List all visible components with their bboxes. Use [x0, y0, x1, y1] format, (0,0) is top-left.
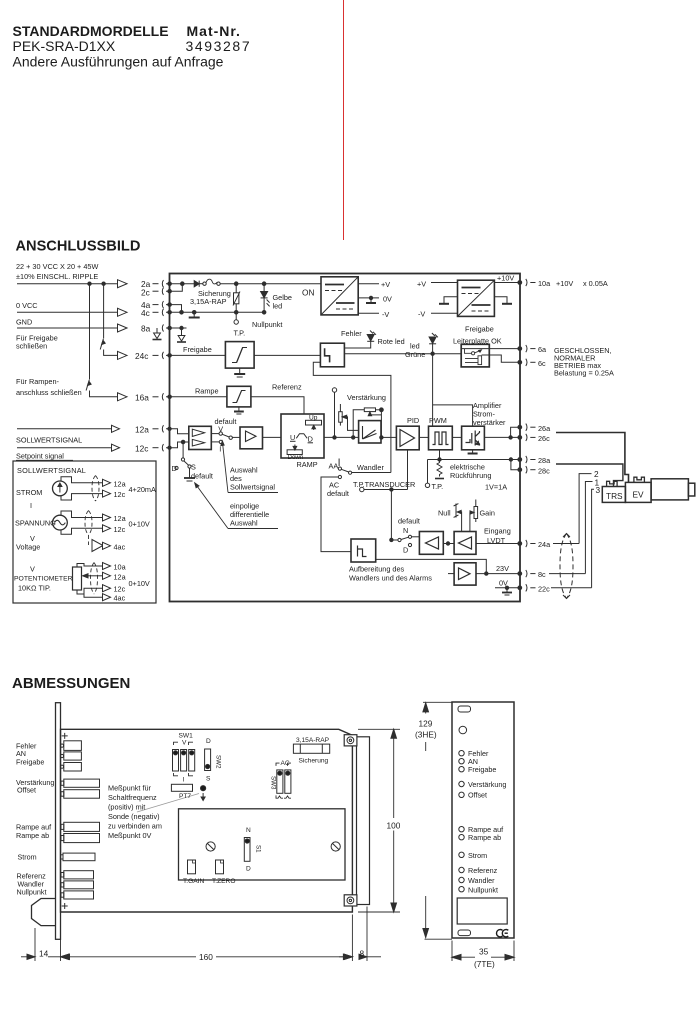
svg-text:EV: EV	[633, 490, 645, 500]
svg-text:3493287: 3493287	[186, 38, 252, 54]
svg-text:+V: +V	[417, 280, 426, 289]
svg-text:28a: 28a	[538, 456, 551, 465]
svg-text:28c: 28c	[538, 466, 550, 475]
svg-text:±10% EINSCHL. RIPPLE: ±10% EINSCHL. RIPPLE	[16, 272, 98, 281]
svg-text:N: N	[403, 526, 408, 535]
svg-text:12a: 12a	[135, 425, 149, 435]
svg-text:22 + 30 VCC X 20 + 45W: 22 + 30 VCC X 20 + 45W	[16, 262, 98, 271]
svg-text:Andere Ausführungen auf Anfrag: Andere Ausführungen auf Anfrage	[13, 54, 224, 70]
svg-text:Freigabe: Freigabe	[465, 325, 494, 334]
svg-text:Rampe ab: Rampe ab	[16, 831, 49, 840]
svg-text:Verstärkung: Verstärkung	[347, 393, 386, 402]
svg-text:22c: 22c	[538, 584, 550, 593]
svg-text:6a: 6a	[538, 345, 547, 354]
svg-text:Wandler: Wandler	[357, 463, 384, 472]
svg-text:T.P.: T.P.	[234, 329, 246, 338]
svg-text:Sollwertsignal: Sollwertsignal	[230, 483, 275, 492]
svg-text:STANDARDMORDELLE: STANDARDMORDELLE	[13, 23, 169, 39]
svg-text:Referenz: Referenz	[468, 866, 498, 875]
svg-text:SPANNUNG: SPANNUNG	[15, 519, 56, 528]
svg-text:GND: GND	[16, 318, 32, 327]
svg-text:PT7: PT7	[179, 793, 191, 800]
svg-text:POTENTIOMETER: POTENTIOMETER	[14, 576, 73, 583]
svg-text:0+10V: 0+10V	[129, 579, 150, 588]
svg-text:24c: 24c	[135, 351, 148, 361]
svg-text:Offset: Offset	[468, 791, 487, 800]
svg-text:12c: 12c	[135, 444, 148, 454]
svg-text:Freigabe: Freigabe	[183, 345, 212, 354]
svg-text:Verstärkung: Verstärkung	[468, 780, 506, 789]
svg-text:schließen: schließen	[16, 342, 47, 351]
svg-text:default: default	[191, 472, 213, 481]
svg-text:Freigabe: Freigabe	[16, 758, 44, 767]
svg-text:35: 35	[479, 947, 489, 957]
svg-text:Rote led: Rote led	[378, 337, 405, 346]
svg-text:LVDT: LVDT	[487, 536, 506, 545]
svg-text:PWM: PWM	[429, 416, 447, 425]
svg-text:14: 14	[39, 949, 49, 959]
svg-text:I: I	[183, 777, 185, 784]
svg-text:10KΩ TIP.: 10KΩ TIP.	[18, 584, 51, 593]
svg-text:1V=1A: 1V=1A	[485, 483, 507, 492]
svg-text:100: 100	[387, 821, 401, 831]
svg-text:Strom: Strom	[18, 853, 37, 862]
svg-text:Setpoint signal: Setpoint signal	[16, 452, 64, 461]
svg-text:D: D	[403, 546, 408, 555]
svg-text:12a: 12a	[114, 514, 127, 523]
svg-text:23V: 23V	[496, 564, 509, 573]
svg-text:Mat-Nr.: Mat-Nr.	[187, 23, 241, 39]
svg-text:-V: -V	[418, 309, 425, 318]
svg-text:Offset: Offset	[17, 786, 36, 795]
svg-text:Nullpunkt: Nullpunkt	[468, 886, 498, 895]
svg-text:V: V	[182, 740, 187, 747]
svg-text:+10V: +10V	[497, 274, 514, 283]
svg-text:12c: 12c	[114, 585, 126, 594]
svg-text:D: D	[206, 738, 211, 745]
svg-text:AA: AA	[329, 462, 339, 471]
svg-text:4+20mA: 4+20mA	[129, 485, 157, 494]
svg-text:12a: 12a	[114, 572, 127, 581]
svg-text:T.ZERO: T.ZERO	[212, 878, 235, 885]
svg-text:anschluss schließen: anschluss schließen	[16, 388, 82, 397]
svg-text:PEK-SRA-D1XX: PEK-SRA-D1XX	[13, 38, 116, 54]
svg-text:129: 129	[419, 719, 433, 729]
svg-text:16a: 16a	[135, 393, 149, 403]
svg-text:8c: 8c	[538, 570, 546, 579]
svg-text:Gain: Gain	[480, 509, 495, 518]
svg-text:T.P.: T.P.	[432, 482, 444, 491]
svg-text:+V: +V	[381, 280, 390, 289]
svg-text:6c: 6c	[538, 359, 546, 368]
svg-text:0 VCC: 0 VCC	[16, 301, 38, 310]
svg-text:Null: Null	[438, 509, 451, 518]
svg-text:Fehler: Fehler	[341, 329, 362, 338]
svg-text:8a: 8a	[141, 324, 151, 334]
svg-text:3,15A-RAP: 3,15A-RAP	[190, 297, 227, 306]
svg-text:Aufbereitung des: Aufbereitung des	[349, 565, 405, 574]
svg-text:24a: 24a	[538, 540, 551, 549]
svg-text:10a: 10a	[114, 563, 127, 572]
svg-text:0+10V: 0+10V	[129, 520, 150, 529]
svg-text:Meßpunkt für: Meßpunkt für	[108, 784, 152, 793]
svg-text:S: S	[191, 463, 196, 472]
svg-text:Freigabe: Freigabe	[468, 765, 496, 774]
svg-text:default: default	[327, 489, 349, 498]
svg-text:Referenz: Referenz	[272, 383, 302, 392]
svg-text:0V: 0V	[383, 295, 392, 304]
svg-text:3: 3	[596, 485, 601, 495]
svg-text:zu verbinden am: zu verbinden am	[108, 822, 162, 831]
svg-text:(3HE): (3HE)	[415, 730, 437, 740]
svg-text:(positiv) mit: (positiv) mit	[108, 803, 145, 812]
svg-text:x 0.05A: x 0.05A	[583, 279, 608, 288]
svg-text:U: U	[290, 433, 295, 442]
svg-text:I: I	[30, 501, 32, 510]
svg-text:ON: ON	[302, 288, 314, 298]
svg-text:S1: S1	[255, 845, 262, 853]
svg-text:Sicherung: Sicherung	[299, 758, 329, 765]
svg-text:PID: PID	[407, 416, 419, 425]
svg-text:SOLLWERTSIGNAL: SOLLWERTSIGNAL	[17, 466, 86, 475]
svg-text:STROM: STROM	[16, 488, 42, 497]
svg-text:D: D	[172, 464, 177, 473]
svg-text:26c: 26c	[538, 434, 550, 443]
svg-text:Grüne: Grüne	[405, 350, 425, 359]
svg-text:Wandlers und des Alarms: Wandlers und des Alarms	[349, 574, 432, 583]
svg-text:Leiterplatte OK: Leiterplatte OK	[453, 337, 502, 346]
svg-text:(7TE): (7TE)	[474, 959, 495, 969]
svg-text:RAMP: RAMP	[297, 460, 318, 469]
svg-text:T.GAIN: T.GAIN	[183, 878, 204, 885]
svg-text:Sonde (negativ): Sonde (negativ)	[108, 812, 160, 821]
svg-text:12c: 12c	[114, 490, 126, 499]
svg-text:4c: 4c	[141, 308, 150, 318]
svg-text:+10V: +10V	[556, 279, 573, 288]
svg-text:D: D	[308, 435, 313, 444]
svg-text:ANSCHLUSSBILD: ANSCHLUSSBILD	[16, 239, 141, 255]
svg-text:Schaltfrequenz: Schaltfrequenz	[108, 793, 157, 802]
svg-text:8: 8	[360, 949, 365, 959]
svg-text:SW2: SW2	[215, 755, 222, 769]
svg-text:Rückführung: Rückführung	[450, 471, 491, 480]
svg-text:verstärker: verstärker	[473, 418, 506, 427]
svg-text:Nullpunkt: Nullpunkt	[252, 320, 282, 329]
svg-text:10a: 10a	[538, 279, 551, 288]
svg-text:Auswahl: Auswahl	[230, 519, 258, 528]
svg-text:12a: 12a	[114, 479, 127, 488]
svg-text:D: D	[246, 866, 251, 873]
svg-text:SW3: SW3	[270, 776, 277, 790]
svg-text:ABMESSUNGEN: ABMESSUNGEN	[12, 675, 130, 692]
svg-text:Strom: Strom	[468, 851, 487, 860]
svg-text:4ac: 4ac	[114, 542, 126, 551]
svg-text:12c: 12c	[114, 525, 126, 534]
svg-text:3,15A-RAP: 3,15A-RAP	[296, 737, 330, 744]
svg-text:160: 160	[199, 952, 213, 962]
svg-text:N: N	[246, 827, 251, 834]
svg-text:S: S	[206, 776, 211, 783]
svg-text:Eingang: Eingang	[484, 527, 511, 536]
svg-text:led: led	[273, 302, 283, 311]
svg-text:SW1: SW1	[179, 733, 194, 740]
svg-text:Wandler: Wandler	[468, 876, 495, 885]
svg-text:V: V	[30, 565, 35, 574]
svg-text:SOLLWERTSIGNAL: SOLLWERTSIGNAL	[16, 436, 82, 445]
svg-text:-V: -V	[382, 310, 389, 319]
svg-text:Für Rampen-: Für Rampen-	[16, 377, 60, 386]
svg-text:TRS: TRS	[606, 491, 623, 501]
svg-text:Nullpunkt: Nullpunkt	[17, 888, 47, 897]
svg-text:Belastung = 0.25A: Belastung = 0.25A	[554, 369, 614, 378]
svg-text:4ac: 4ac	[114, 594, 126, 603]
svg-text:Rampe: Rampe	[195, 387, 219, 396]
svg-text:26a: 26a	[538, 424, 551, 433]
svg-text:2c: 2c	[141, 288, 150, 298]
svg-text:Voltage: Voltage	[16, 543, 40, 552]
svg-text:default: default	[398, 517, 420, 526]
svg-text:Meßpunkt 0V: Meßpunkt 0V	[108, 831, 152, 840]
svg-text:Rampe ab: Rampe ab	[468, 833, 501, 842]
